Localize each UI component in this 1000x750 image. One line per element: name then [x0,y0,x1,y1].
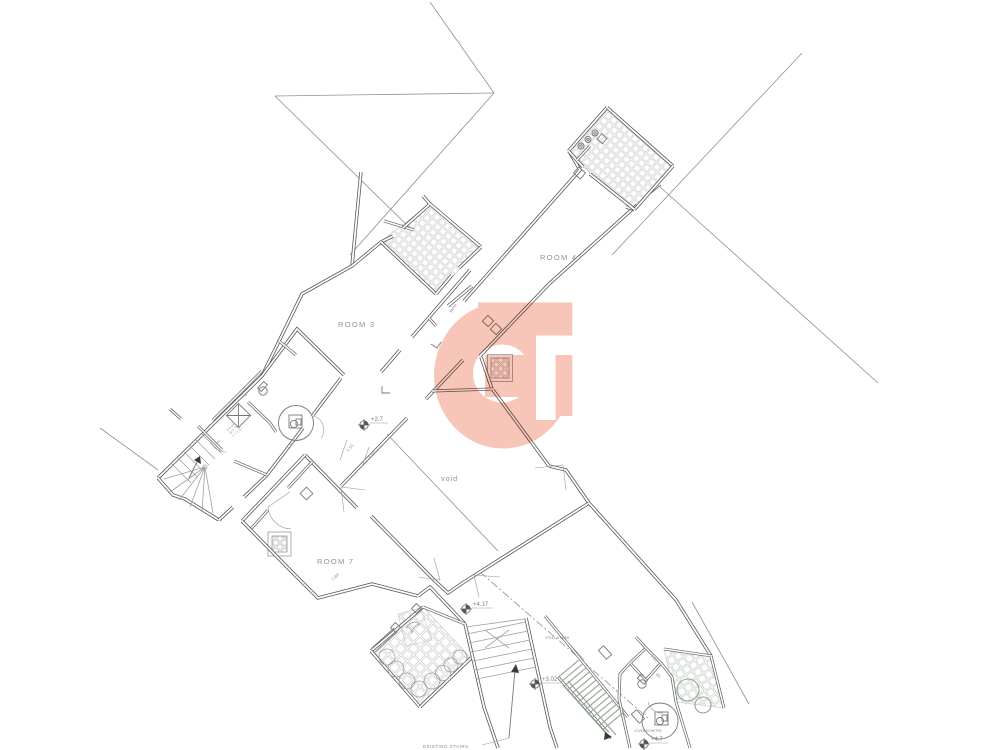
svg-text:+4.7: +4.7 [651,737,664,743]
svg-text:ROOM 7: ROOM 7 [317,557,354,566]
svg-text:+3.02: +3.02 [542,677,558,683]
svg-text:EXISTING STAIRS: EXISTING STAIRS [423,744,469,749]
svg-text:STEEL STAIRS: STEEL STAIRS [545,636,570,640]
svg-text:void: void [441,474,458,483]
svg-text:ROOM 4: ROOM 4 [540,253,577,262]
svg-text:ROOM 3: ROOM 3 [338,320,375,329]
svg-text:+4.17: +4.17 [473,602,489,608]
svg-text:+2.7: +2.7 [371,417,384,423]
svg-text:COVERED METRE: COVERED METRE [634,729,662,733]
